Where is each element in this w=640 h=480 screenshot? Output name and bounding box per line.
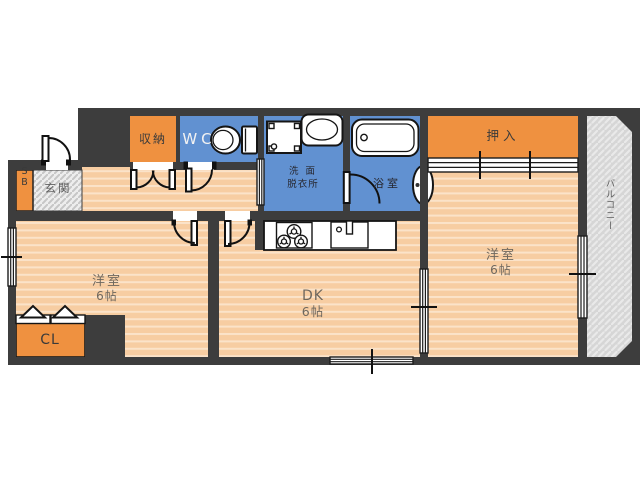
cl-label: CL [40,332,60,348]
washroom-label-line1: 洗 面 [289,165,317,177]
dk-door-opening [225,211,250,221]
bedroom-left-door-opening [173,211,197,221]
dk-size: 6帖 [302,304,324,319]
washroom-sliding-door [257,159,264,205]
storage-door-opening [133,162,173,170]
bathroom-label: 浴室 [373,176,401,190]
storage-label: 収納 [139,132,167,146]
wall-mass-topleft [78,108,130,167]
toilet-icon [211,127,257,154]
wall-right-outer [632,108,640,365]
kitchen-sink-icon [331,221,368,248]
wall-notch-bottomleft [85,315,125,365]
gas-stove-icon [277,223,313,249]
wall-storage-wc-divider [176,116,180,162]
bedroom-left-size: 6帖 [96,288,118,303]
washing-machine-icon [267,122,301,154]
dk-name: DK [302,288,324,304]
wall-top [78,108,640,116]
oshiire-label: 押入 [486,128,519,143]
balcony-area [587,116,632,357]
sink-basin-icon [302,115,343,146]
bedroom-right-name: 洋室 [486,247,516,263]
wall-bedroom-dk [208,211,219,365]
bedroom-left-name: 洋室 [92,273,122,289]
floorplan-drawing: 収納 WC 洗 面 脱衣所 浴室 押入 玄関 SB バルコニー 洋室 6帖 DK… [0,0,640,480]
bathtub-icon [352,120,419,157]
kitchen-counter [264,221,396,250]
shoe-box-label: SB [19,166,30,188]
wc-label: WC [182,130,215,148]
floorplan-page: 収納 WC 洗 面 脱衣所 浴室 押入 玄関 SB バルコニー 洋室 6帖 DK… [0,0,640,480]
washroom-label-line2: 脱衣所 [287,178,319,190]
balcony-label: バルコニー [604,179,616,232]
bedroom-right-size: 6帖 [490,262,512,277]
entrance-label: 玄関 [45,181,72,195]
